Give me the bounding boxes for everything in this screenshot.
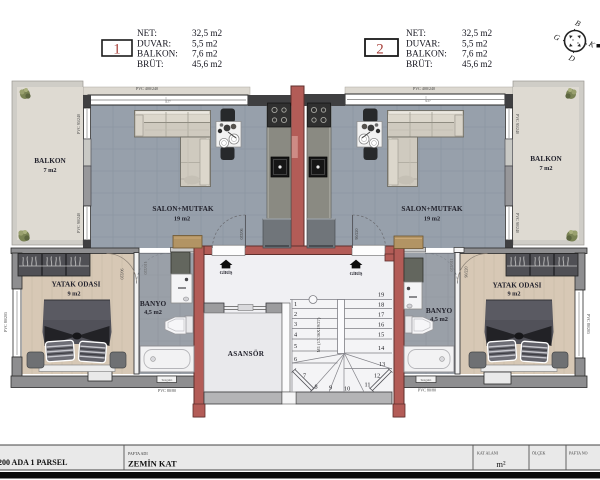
svg-text:32,5 m2: 32,5 m2 <box>192 28 223 38</box>
svg-text:PVC 80/80: PVC 80/80 <box>418 388 436 393</box>
svg-text:ÖLÇEK: ÖLÇEK <box>532 451 545 456</box>
svg-text:110/220: 110/220 <box>449 259 454 272</box>
svg-text:45,6 m2: 45,6 m2 <box>192 59 223 69</box>
svg-text:19 m2: 19 m2 <box>174 216 190 223</box>
svg-text:7: 7 <box>303 373 306 380</box>
svg-text:PVC 95/240: PVC 95/240 <box>76 114 81 134</box>
svg-text:PVC 400/240: PVC 400/240 <box>136 86 158 91</box>
svg-text:KAT ALANI: KAT ALANI <box>477 451 499 456</box>
svg-text:9: 9 <box>329 385 332 392</box>
svg-text:m²: m² <box>496 459 506 469</box>
svg-text:PVC 80/205: PVC 80/205 <box>586 314 591 334</box>
svg-text:19: 19 <box>378 292 384 299</box>
svg-text:7 m2: 7 m2 <box>43 167 56 174</box>
svg-text:B: B <box>574 18 582 28</box>
svg-text:32,5 m2: 32,5 m2 <box>462 28 493 38</box>
svg-text:2: 2 <box>294 311 297 318</box>
svg-text:M1 (17.36X19/27): M1 (17.36X19/27) <box>316 317 321 352</box>
svg-text:6: 6 <box>294 356 297 363</box>
svg-text:K: K <box>587 39 597 50</box>
svg-text:2: 2 <box>376 42 384 58</box>
svg-text:PAFTA ADI: PAFTA ADI <box>128 451 148 456</box>
svg-text:15: 15 <box>378 332 384 339</box>
svg-text:10: 10 <box>344 386 350 393</box>
svg-text:17: 17 <box>378 312 384 319</box>
svg-text:BALKON: BALKON <box>530 154 562 163</box>
svg-text:4,5 m2: 4,5 m2 <box>144 309 162 316</box>
svg-text:YATAK ODASI: YATAK ODASI <box>493 282 542 290</box>
svg-text:5,5 m2: 5,5 m2 <box>462 39 488 49</box>
svg-text:110/220: 110/220 <box>143 262 148 275</box>
svg-text:7 m2: 7 m2 <box>539 165 552 172</box>
svg-text:PVC 95/240: PVC 95/240 <box>515 114 520 134</box>
svg-text:45,6 m2: 45,6 m2 <box>462 59 493 69</box>
svg-text:YATAK ODASI: YATAK ODASI <box>52 281 101 289</box>
svg-text:Tezgah1: Tezgah1 <box>161 378 173 382</box>
svg-text:NET:: NET: <box>137 28 157 38</box>
svg-text:13: 13 <box>379 361 385 368</box>
svg-text:DUVAR:: DUVAR: <box>406 39 440 49</box>
svg-text:DUVAR:: DUVAR: <box>137 39 171 49</box>
svg-text:14: 14 <box>378 345 384 352</box>
svg-text:5: 5 <box>294 343 297 350</box>
svg-text:1: 1 <box>294 301 297 308</box>
svg-text:PVC 80/205: PVC 80/205 <box>3 312 8 332</box>
svg-text:ZEMİN KAT: ZEMİN KAT <box>128 459 177 469</box>
svg-text:PVC 90/240: PVC 90/240 <box>515 213 520 233</box>
svg-text:1: 1 <box>113 42 121 58</box>
svg-text:ASANSÖR: ASANSÖR <box>228 349 265 358</box>
svg-text:3: 3 <box>294 321 297 328</box>
svg-text:BRÜT:: BRÜT: <box>137 59 164 69</box>
svg-text:5,5 m2: 5,5 m2 <box>192 39 218 49</box>
svg-text:PVC 90/240: PVC 90/240 <box>76 213 81 233</box>
svg-text:16: 16 <box>378 322 384 329</box>
svg-text:90/220: 90/220 <box>464 266 469 277</box>
svg-text:SALON+MUTFAK: SALON+MUTFAK <box>401 204 463 213</box>
svg-text:BALKON: BALKON <box>34 156 66 165</box>
svg-text:BALKON:: BALKON: <box>406 49 447 59</box>
svg-text:7,6 m2: 7,6 m2 <box>192 49 218 59</box>
svg-text:BANYO: BANYO <box>426 306 453 315</box>
svg-text:90/220: 90/220 <box>354 228 359 239</box>
svg-text:D: D <box>566 53 576 64</box>
svg-text:BALKON:: BALKON: <box>137 49 178 59</box>
svg-text:19 m2: 19 m2 <box>424 216 440 223</box>
svg-text:GİRİŞ: GİRİŞ <box>220 270 233 275</box>
svg-text:4: 4 <box>294 332 297 339</box>
svg-text:PVC 400/240: PVC 400/240 <box>413 86 435 91</box>
svg-text:4,5 m2: 4,5 m2 <box>430 316 448 323</box>
svg-text:PVC 80/80: PVC 80/80 <box>158 388 176 393</box>
svg-text:9 m2: 9 m2 <box>67 291 80 298</box>
svg-text:BRÜT:: BRÜT: <box>406 59 433 69</box>
svg-text:GİRİŞ: GİRİŞ <box>350 271 363 276</box>
svg-text:NET:: NET: <box>406 28 426 38</box>
svg-text:90/220: 90/220 <box>120 268 125 279</box>
svg-text:G: G <box>552 32 561 43</box>
svg-text:9 m2: 9 m2 <box>507 291 520 298</box>
svg-text:12: 12 <box>374 373 380 380</box>
svg-text:BANYO: BANYO <box>140 299 167 308</box>
svg-text:1200 ADA 1 PARSEL: 1200 ADA 1 PARSEL <box>0 458 67 467</box>
svg-text:90/220: 90/220 <box>239 228 244 239</box>
svg-text:5.57: 5.57 <box>425 99 431 103</box>
svg-text:PAFTA NO: PAFTA NO <box>569 451 588 456</box>
svg-text:5.57: 5.57 <box>165 99 171 103</box>
svg-text:18: 18 <box>378 302 384 309</box>
svg-text:8: 8 <box>315 384 318 391</box>
svg-text:11: 11 <box>365 382 371 389</box>
svg-text:Tezgah1: Tezgah1 <box>420 378 432 382</box>
svg-text:SALON+MUTFAK: SALON+MUTFAK <box>152 204 214 213</box>
svg-text:7,6 m2: 7,6 m2 <box>462 49 488 59</box>
